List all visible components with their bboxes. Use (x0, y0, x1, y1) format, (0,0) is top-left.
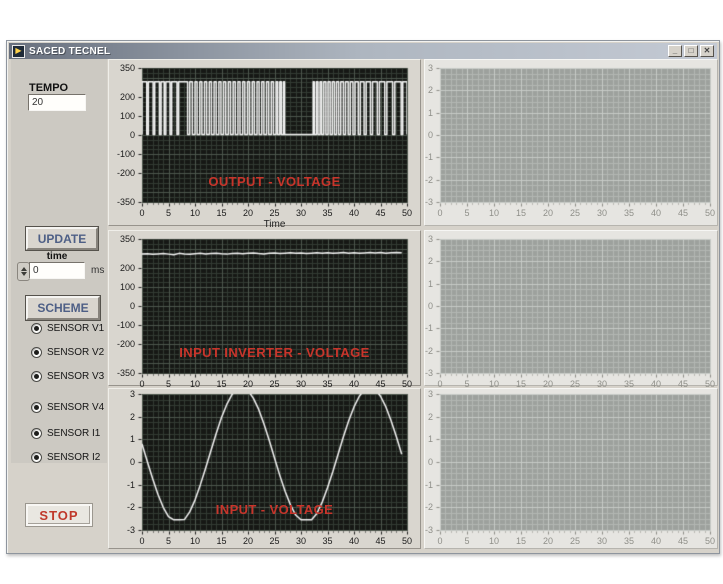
y-axis-tick-label: 0 (109, 457, 135, 467)
y-axis-tick-label: 3 (425, 234, 433, 244)
input-voltage-chart-plot (109, 389, 422, 550)
x-axis-tick-label: 5 (455, 208, 479, 218)
sensor-radio-label: SENSOR I2 (47, 452, 100, 463)
y-axis-tick-label: -3 (425, 525, 433, 535)
x-axis-tick-label: 45 (671, 536, 695, 546)
input-voltage-chart-panel: 3210-1-2-305101520253035404550INPUT - VO… (108, 388, 421, 549)
x-axis-tick-label: 0 (428, 536, 452, 546)
input-inverter-voltage-chart-panel: 3502001000-100-200-350051015202530354045… (108, 230, 421, 386)
sensor-radio-label: SENSOR V4 (47, 402, 104, 413)
x-axis-tick-label: 0 (130, 536, 154, 546)
time-input[interactable] (29, 262, 85, 279)
radio-button-icon[interactable] (31, 323, 42, 334)
empty-chart-3-plot (425, 389, 719, 550)
radio-button-icon[interactable] (31, 347, 42, 358)
sensor-radio-6[interactable]: SENSOR I2 (31, 451, 100, 464)
y-axis-tick-label: 1 (109, 434, 135, 444)
y-axis-tick-label: -200 (109, 339, 135, 349)
x-axis-tick-label: 25 (563, 536, 587, 546)
empty-chart-2-panel: 3210-1-2-305101520253035404550 (424, 230, 718, 386)
x-axis-tick-label: 5 (157, 536, 181, 546)
y-axis-tick-label: 2 (425, 256, 433, 266)
x-axis-tick-label: 15 (509, 536, 533, 546)
sensor-radio-label: SENSOR V3 (47, 371, 104, 382)
time-unit-label: ms (91, 265, 104, 276)
update-button[interactable]: UPDATE (26, 227, 98, 250)
x-axis-tick-label: 30 (590, 208, 614, 218)
y-axis-tick-label: -2 (109, 502, 135, 512)
y-axis-tick-label: 0 (425, 301, 433, 311)
output-voltage-chart-panel: 3502001000-100-200-350051015202530354045… (108, 59, 421, 226)
y-axis-tick-label: 0 (109, 130, 135, 140)
sensor-radio-2[interactable]: SENSOR V2 (31, 346, 104, 359)
x-axis-tick-label: 40 (342, 208, 366, 218)
scheme-button[interactable]: SCHEME (26, 296, 100, 320)
title-bar[interactable]: ▶ SACED TECNEL _ □ ✕ (9, 43, 717, 59)
sensor-radio-3[interactable]: SENSOR V3 (31, 370, 104, 383)
x-axis-tick-label: 40 (342, 536, 366, 546)
x-axis-name: Time (142, 219, 407, 230)
y-axis-tick-label: 100 (109, 282, 135, 292)
y-axis-tick-label: -3 (425, 197, 433, 207)
y-axis-tick-label: -2 (425, 502, 433, 512)
window-title: SACED TECNEL (29, 46, 666, 57)
y-axis-tick-label: -3 (109, 525, 135, 535)
x-axis-tick-label: 0 (130, 208, 154, 218)
chart-title: INPUT INVERTER - VOLTAGE (142, 345, 407, 360)
x-axis-tick-label: 5 (455, 536, 479, 546)
spinner-up-icon[interactable] (21, 267, 27, 271)
sensor-radio-label: SENSOR I1 (47, 428, 100, 439)
x-axis-tick-label: 30 (289, 208, 313, 218)
y-axis-tick-label: -100 (109, 149, 135, 159)
spinner-down-icon[interactable] (21, 272, 27, 276)
maximize-button[interactable]: □ (684, 45, 698, 57)
radio-button-icon[interactable] (31, 452, 42, 463)
y-axis-tick-label: 0 (425, 457, 433, 467)
y-axis-tick-label: -3 (425, 368, 433, 378)
y-axis-tick-label: 3 (109, 389, 135, 399)
x-axis-tick-label: 30 (289, 536, 313, 546)
empty-chart-1-panel: 3210-1-2-305101520253035404550 (424, 59, 718, 226)
y-axis-tick-label: 1 (425, 108, 433, 118)
radio-button-icon[interactable] (31, 428, 42, 439)
y-axis-tick-label: 350 (109, 63, 135, 73)
y-axis-tick-label: -200 (109, 168, 135, 178)
y-axis-tick-label: 200 (109, 263, 135, 273)
close-button[interactable]: ✕ (700, 45, 714, 57)
x-axis-tick-label: 0 (428, 208, 452, 218)
chart-title: INPUT - VOLTAGE (142, 502, 407, 517)
y-axis-tick-label: 0 (425, 130, 433, 140)
stop-button[interactable]: STOP (26, 504, 92, 526)
sensor-radio-label: SENSOR V2 (47, 347, 104, 358)
x-axis-tick-label: 20 (236, 536, 260, 546)
x-axis-tick-label: 15 (509, 208, 533, 218)
tempo-label: TEMPO (29, 82, 68, 94)
x-axis-tick-label: 25 (563, 208, 587, 218)
x-axis-tick-label: 25 (263, 536, 287, 546)
radio-button-icon[interactable] (31, 371, 42, 382)
x-axis-tick-label: 50 (395, 208, 419, 218)
x-axis-tick-label: 15 (210, 536, 234, 546)
y-axis-tick-label: 0 (109, 301, 135, 311)
x-axis-tick-label: 40 (644, 536, 668, 546)
empty-chart-2-plot (425, 231, 719, 387)
x-axis-tick-label: 10 (183, 208, 207, 218)
x-axis-tick-label: 50 (698, 536, 722, 546)
x-axis-tick-label: 20 (236, 208, 260, 218)
x-axis-tick-label: 45 (671, 208, 695, 218)
x-axis-tick-label: 45 (369, 208, 393, 218)
y-axis-tick-label: 3 (425, 63, 433, 73)
x-axis-tick-label: 10 (183, 536, 207, 546)
screen: ▶ SACED TECNEL _ □ ✕ TEMPO UPDATE time m… (0, 0, 723, 584)
x-axis-tick-label: 50 (698, 208, 722, 218)
x-axis-tick-label: 35 (617, 536, 641, 546)
sensor-radio-label: SENSOR V1 (47, 323, 104, 334)
x-axis-tick-label: 10 (482, 208, 506, 218)
sensor-radio-1[interactable]: SENSOR V1 (31, 322, 104, 335)
y-axis-tick-label: 100 (109, 111, 135, 121)
y-axis-tick-label: -1 (425, 152, 433, 162)
labview-run-arrow-icon: ▶ (12, 45, 25, 58)
x-axis-tick-label: 20 (536, 536, 560, 546)
y-axis-tick-label: 2 (425, 85, 433, 95)
x-axis-tick-label: 20 (536, 208, 560, 218)
y-axis-tick-label: 2 (109, 412, 135, 422)
y-axis-tick-label: 1 (425, 279, 433, 289)
x-axis-tick-label: 45 (369, 536, 393, 546)
x-axis-tick-label: 35 (316, 536, 340, 546)
y-axis-tick-label: -2 (425, 346, 433, 356)
empty-chart-1-plot (425, 60, 719, 227)
y-axis-tick-label: -1 (425, 323, 433, 333)
y-axis-tick-label: 2 (425, 412, 433, 422)
x-axis-tick-label: 10 (482, 536, 506, 546)
y-axis-tick-label: -100 (109, 320, 135, 330)
y-axis-tick-label: 350 (109, 234, 135, 244)
y-axis-tick-label: -350 (109, 368, 135, 378)
x-axis-tick-label: 5 (157, 208, 181, 218)
x-axis-tick-label: 35 (617, 208, 641, 218)
output-voltage-chart-plot (109, 60, 422, 227)
y-axis-tick-label: -1 (109, 480, 135, 490)
x-axis-tick-label: 40 (644, 208, 668, 218)
y-axis-tick-label: 3 (425, 389, 433, 399)
tempo-input[interactable] (28, 94, 86, 111)
x-axis-tick-label: 50 (395, 536, 419, 546)
y-axis-tick-label: -1 (425, 480, 433, 490)
radio-button-icon[interactable] (31, 402, 42, 413)
x-axis-tick-label: 15 (210, 208, 234, 218)
y-axis-tick-label: 1 (425, 434, 433, 444)
input-inverter-voltage-chart-plot (109, 231, 422, 387)
sensor-radio-5[interactable]: SENSOR I1 (31, 427, 100, 440)
y-axis-tick-label: -2 (425, 175, 433, 185)
empty-chart-3-panel: 3210-1-2-305101520253035404550 (424, 388, 718, 549)
x-axis-tick-label: 35 (316, 208, 340, 218)
time-label: time (29, 251, 85, 262)
x-axis-tick-label: 30 (590, 536, 614, 546)
x-axis-tick-label: 25 (263, 208, 287, 218)
chart-title: OUTPUT - VOLTAGE (142, 174, 407, 189)
y-axis-tick-label: 200 (109, 92, 135, 102)
minimize-button[interactable]: _ (668, 45, 682, 57)
sensor-radio-4[interactable]: SENSOR V4 (31, 401, 104, 414)
app-window: ▶ SACED TECNEL _ □ ✕ TEMPO UPDATE time m… (6, 40, 720, 554)
y-axis-tick-label: -350 (109, 197, 135, 207)
